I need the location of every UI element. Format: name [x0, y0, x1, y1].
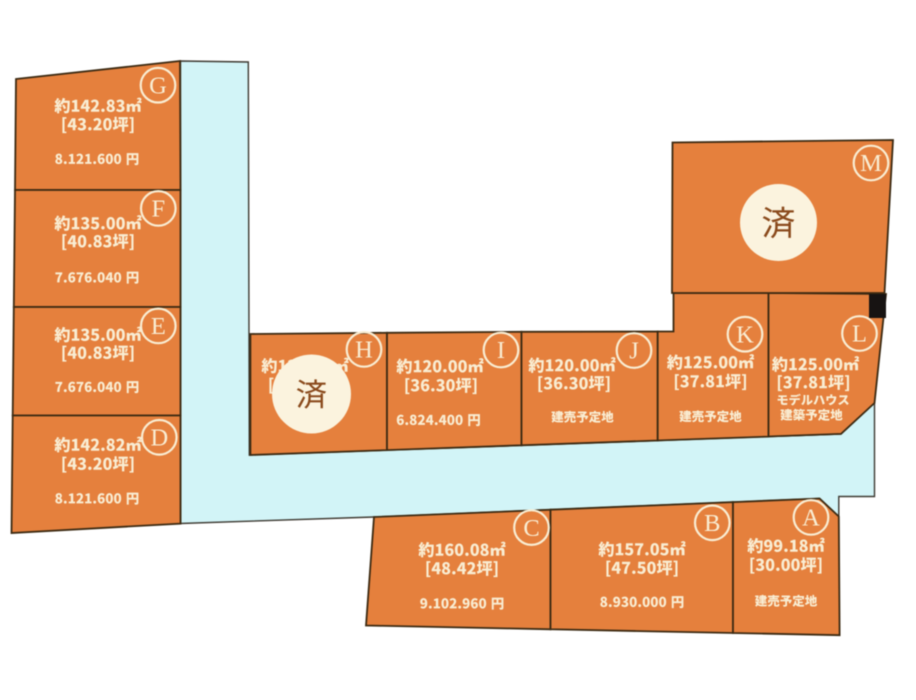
svg-text:K: K	[736, 321, 754, 348]
svg-text:F: F	[151, 196, 165, 223]
svg-text:H: H	[355, 337, 373, 364]
svg-text:D: D	[150, 425, 168, 452]
svg-text:E: E	[151, 313, 166, 340]
svg-text:M: M	[860, 150, 882, 177]
svg-text:G: G	[149, 72, 167, 99]
svg-text:A: A	[802, 505, 820, 532]
svg-text:C: C	[523, 515, 539, 542]
svg-text:I: I	[497, 337, 505, 364]
svg-text:B: B	[704, 510, 720, 537]
svg-text:L: L	[852, 321, 867, 348]
svg-text:J: J	[629, 338, 639, 365]
